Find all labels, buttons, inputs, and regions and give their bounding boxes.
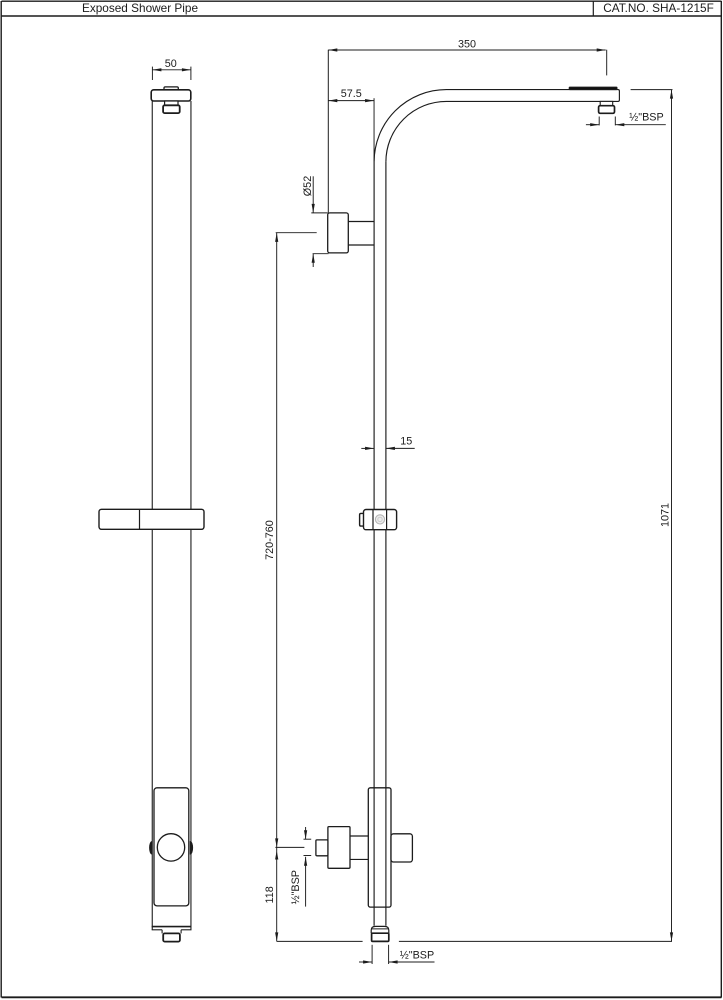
svg-text:½"BSP: ½"BSP [400,950,434,962]
svg-text:½"BSP: ½"BSP [629,112,663,124]
svg-text:50: 50 [165,58,177,70]
svg-text:720-760: 720-760 [264,520,276,560]
svg-text:CAT.NO. SHA-1215F: CAT.NO. SHA-1215F [603,1,714,15]
svg-text:Ø52: Ø52 [302,176,314,196]
svg-text:118: 118 [264,886,276,903]
svg-text:Exposed Shower Pipe: Exposed Shower Pipe [82,1,199,15]
svg-text:57.5: 57.5 [341,88,362,100]
svg-text:½"BSP: ½"BSP [290,870,302,904]
svg-text:1071: 1071 [660,503,672,527]
svg-text:15: 15 [400,436,412,448]
svg-text:350: 350 [458,39,476,51]
